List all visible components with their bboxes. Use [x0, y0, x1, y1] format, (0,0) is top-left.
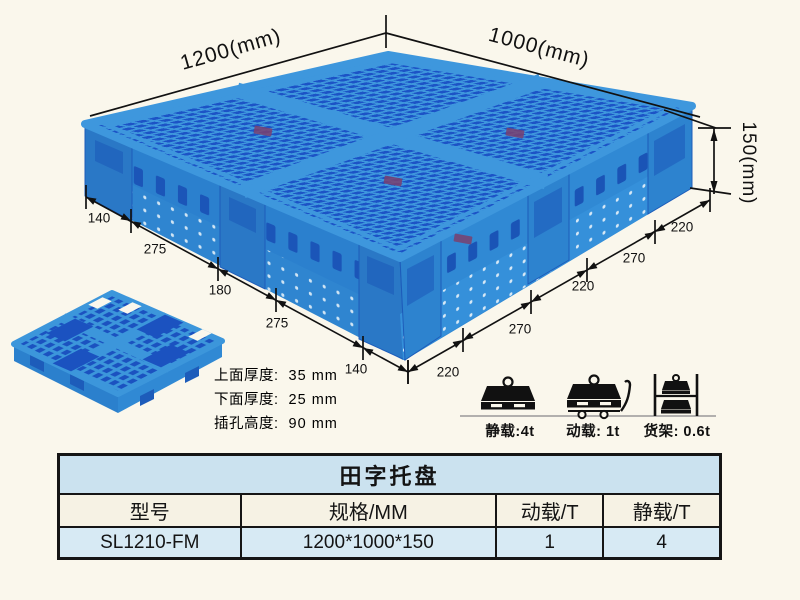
spec-value: 90 mm [289, 416, 338, 432]
spec-label: 上面厚度: [214, 368, 279, 384]
rack-load-icon [655, 374, 697, 416]
left-edge-segment-label: 140 [88, 211, 111, 226]
col-header-model: 型号 [59, 494, 241, 527]
spec-label: 插孔高度: [214, 416, 279, 432]
spec-table: 田字托盘 型号 规格/MM 动载/T 静载/T SL1210-FM 1200*1… [57, 453, 722, 560]
cell-model: SL1210-FM [59, 527, 241, 559]
left-edge-segment-label: 275 [266, 316, 289, 331]
right-edge-segment-label: 220 [671, 220, 694, 235]
left-edge-segment-label: 180 [209, 283, 232, 298]
col-header-dynamic: 动载/T [496, 494, 603, 527]
spec-value: 35 mm [289, 368, 338, 384]
spec-value: 25 mm [289, 392, 338, 408]
right-edge-segment-label: 270 [623, 251, 646, 266]
dynamic-load-icon [567, 376, 630, 419]
dynamic-load-label: 动载: 1t [566, 420, 620, 441]
left-edge-segment-label: 140 [345, 362, 368, 377]
main-pallet-image [85, 55, 692, 360]
right-edge-segment-label: 220 [572, 279, 595, 294]
table-row: SL1210-FM 1200*1000*150 1 4 [59, 527, 721, 559]
spec-fork-height: 插孔高度:90 mm [214, 412, 338, 433]
height-dimension-label: 150(mm) [737, 121, 759, 204]
col-header-spec: 规格/MM [241, 494, 497, 527]
left-edge-segment-label: 275 [144, 242, 167, 257]
static-load-label: 静载:4t [485, 420, 534, 441]
right-edge-segment-label: 270 [509, 322, 532, 337]
spec-top-thickness: 上面厚度:35 mm [214, 364, 338, 385]
static-load-icon [481, 378, 535, 410]
table-title: 田字托盘 [59, 455, 721, 495]
col-header-static: 静载/T [603, 494, 720, 527]
cell-spec: 1200*1000*150 [241, 527, 497, 559]
cell-dynamic-load: 1 [496, 527, 603, 559]
rack-load-label: 货架: 0.6t [644, 420, 711, 441]
small-pallet-image [14, 293, 222, 413]
spec-label: 下面厚度: [214, 392, 279, 408]
cell-static-load: 4 [603, 527, 720, 559]
product-sheet: 1200(mm) 1000(mm) 150(mm) 140 275 180 27… [0, 0, 800, 600]
spec-bottom-thickness: 下面厚度:25 mm [214, 388, 338, 409]
right-edge-segment-label: 220 [437, 365, 460, 380]
